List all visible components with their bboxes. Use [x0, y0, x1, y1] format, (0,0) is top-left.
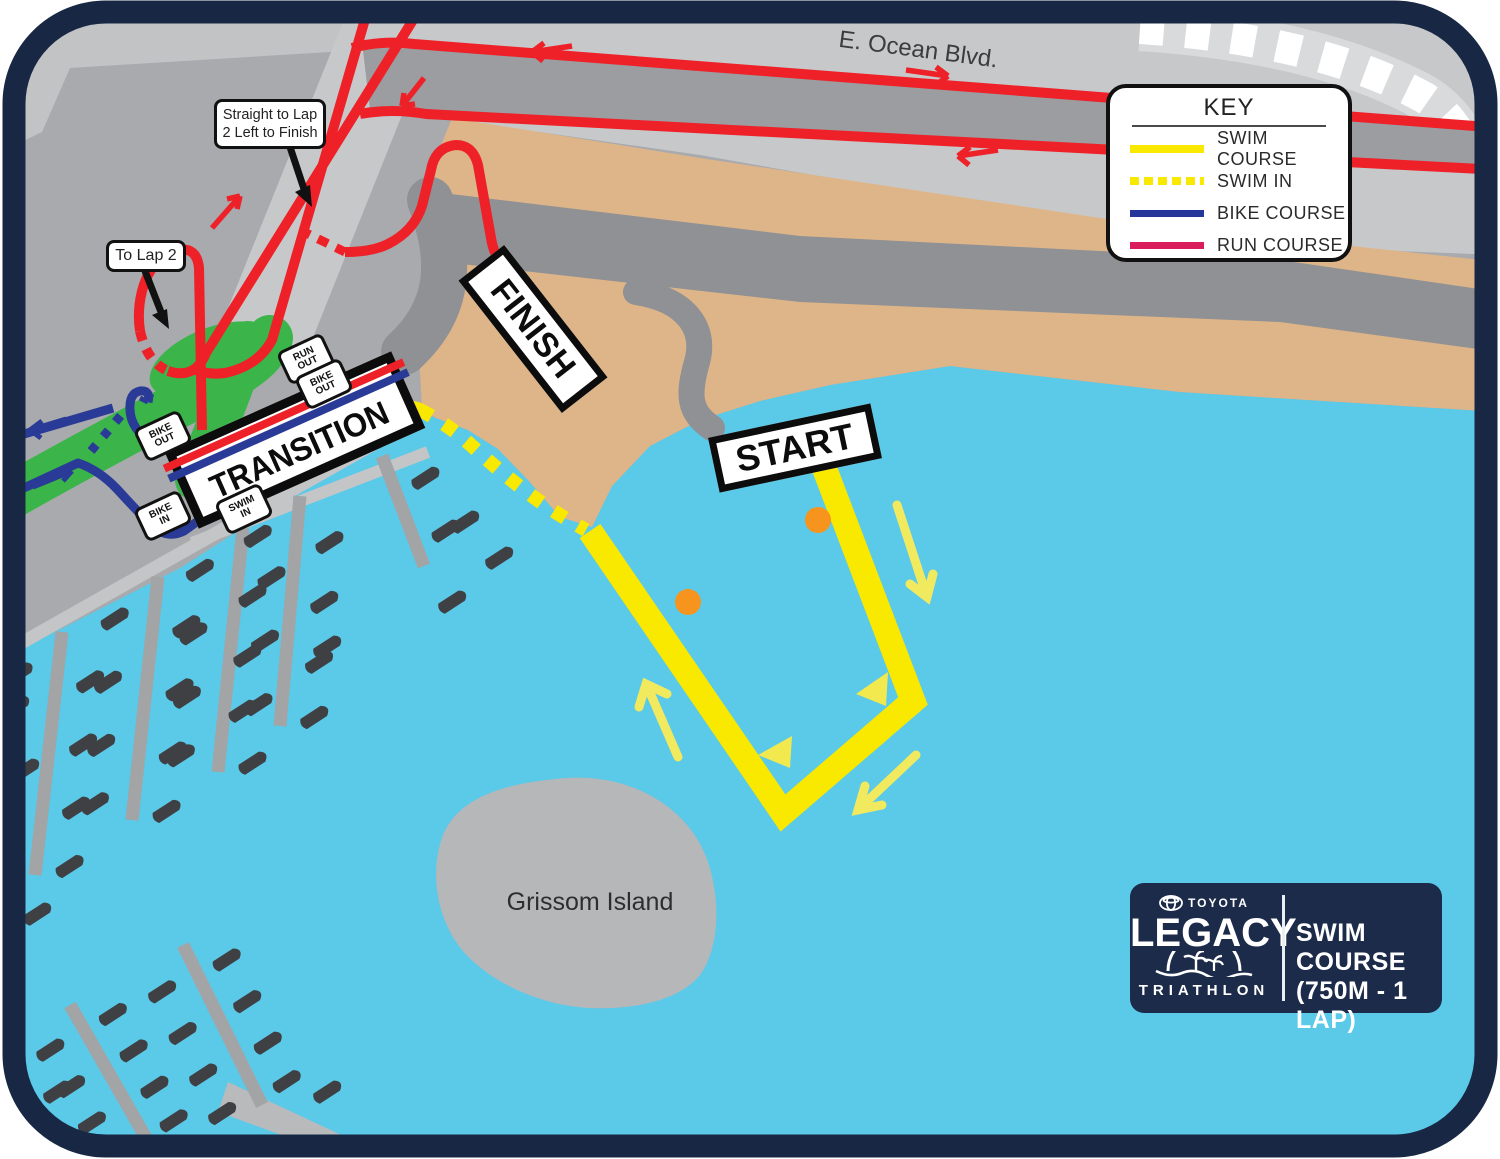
legend-label: RUN COURSE: [1217, 235, 1343, 256]
legend-row-run-course: RUN COURSE: [1110, 229, 1348, 261]
toyota-label: TOYOTA: [1188, 896, 1249, 910]
triathlon-course-map: E. Ocean Blvd. Straight to Lap 2 Left to…: [0, 0, 1500, 1159]
course-title: SWIM COURSE (750M - 1 LAP): [1296, 919, 1442, 1035]
callout-text: To Lap 2: [115, 247, 176, 265]
callout-to-lap2: To Lap 2: [106, 240, 186, 272]
swim-in-swatch: [1130, 177, 1204, 185]
legacy-logo: TOYOTA LEGACY TRIATHLON: [1130, 883, 1278, 1013]
bike-course-swatch: [1130, 210, 1204, 217]
legacy-label: LEGACY: [1130, 911, 1278, 956]
toyota-emblem-icon: [1159, 895, 1183, 911]
palm-sunset-icon: [1154, 951, 1254, 977]
legend-rule: [1132, 125, 1326, 127]
event-logo-box: TOYOTA LEGACY TRIATHLON SWIM COURSE (750…: [1130, 883, 1442, 1013]
legend-key: KEY SWIM COURSE SWIM IN BIKE COURSE RUN …: [1106, 84, 1352, 262]
legend-row-bike-course: BIKE COURSE: [1110, 197, 1348, 229]
buoy: [805, 507, 831, 533]
triathlon-label: TRIATHLON: [1130, 982, 1278, 999]
course-title-line1: SWIM COURSE: [1296, 919, 1442, 977]
legend-title: KEY: [1110, 94, 1348, 122]
legend-row-swim-course: SWIM COURSE: [1110, 133, 1348, 165]
legend-label: SWIM IN: [1217, 171, 1293, 192]
island-label: Grissom Island: [490, 888, 690, 917]
legend-label: BIKE COURSE: [1217, 203, 1346, 224]
toyota-brand: TOYOTA: [1130, 895, 1278, 911]
tag-line: IN: [239, 507, 252, 520]
buoy: [675, 589, 701, 615]
callout-line2: 2 Left to Finish: [222, 124, 317, 142]
legend-label: SWIM COURSE: [1217, 128, 1348, 170]
course-title-line2: (750M - 1 LAP): [1296, 977, 1442, 1035]
logo-divider: [1282, 895, 1285, 1001]
callout-line1: Straight to Lap: [223, 106, 317, 124]
swim-course-swatch: [1130, 145, 1204, 153]
run-course-swatch: [1130, 242, 1204, 249]
callout-straight-to-lap2: Straight to Lap 2 Left to Finish: [214, 99, 326, 149]
tag-line: IN: [158, 514, 171, 527]
